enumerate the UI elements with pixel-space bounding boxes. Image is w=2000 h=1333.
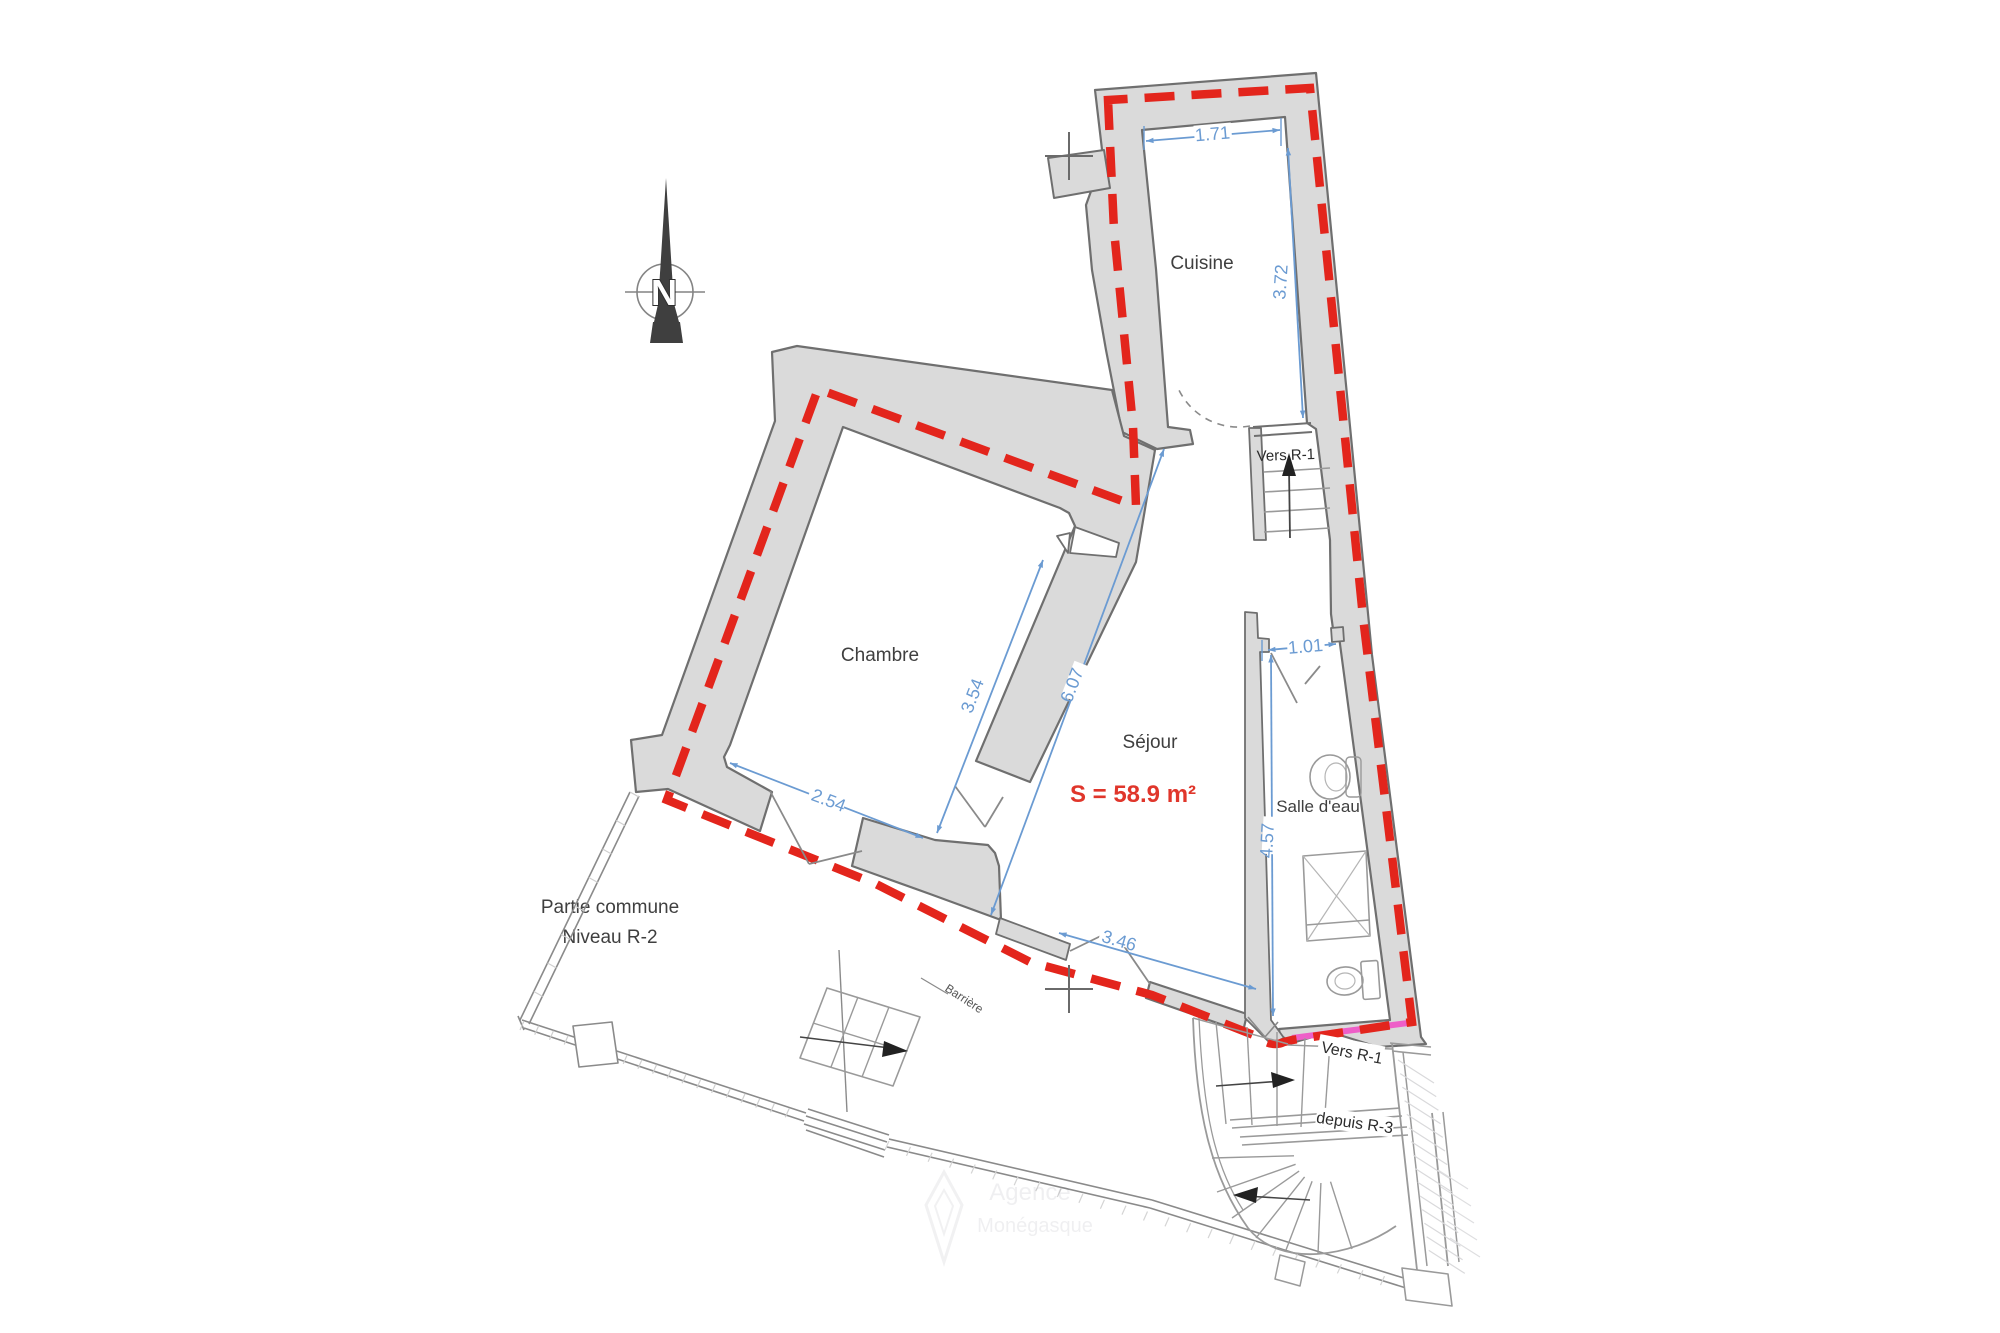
svg-text:N: N xyxy=(651,272,677,313)
svg-text:3.72: 3.72 xyxy=(1269,264,1291,300)
svg-text:Vers R-1: Vers R-1 xyxy=(1256,446,1315,465)
svg-text:Partie commune: Partie commune xyxy=(541,897,679,918)
svg-text:1.71: 1.71 xyxy=(1194,122,1231,145)
svg-text:1.01: 1.01 xyxy=(1287,635,1324,658)
svg-text:Agence: Agence xyxy=(989,1179,1070,1206)
svg-text:Chambre: Chambre xyxy=(841,645,919,666)
svg-text:Monégasque: Monégasque xyxy=(977,1215,1093,1237)
svg-text:S = 58.9 m²: S = 58.9 m² xyxy=(1070,781,1196,808)
svg-text:Séjour: Séjour xyxy=(1123,732,1179,753)
svg-text:Salle d'eau: Salle d'eau xyxy=(1276,797,1360,816)
svg-text:4.57: 4.57 xyxy=(1256,823,1278,859)
svg-text:Cuisine: Cuisine xyxy=(1170,253,1233,274)
svg-text:Niveau R-2: Niveau R-2 xyxy=(562,927,657,948)
